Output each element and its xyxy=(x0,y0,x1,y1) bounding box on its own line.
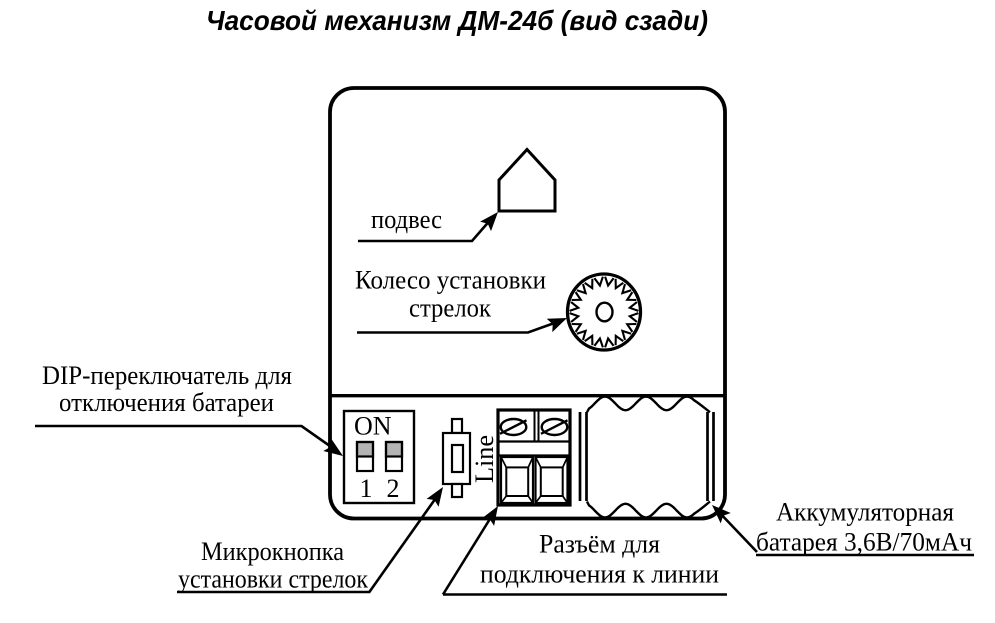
svg-text:отключения батареи: отключения батареи xyxy=(59,388,274,417)
svg-text:ON: ON xyxy=(354,412,392,441)
svg-text:Разъём для: Разъём для xyxy=(539,530,660,559)
svg-text:подвес: подвес xyxy=(371,205,442,234)
svg-text:Часовой механизм ДМ-24б (вид с: Часовой механизм ДМ-24б (вид сзади) xyxy=(206,5,708,36)
svg-text:стрелок: стрелок xyxy=(409,294,491,323)
svg-text:батарея 3,6В/70мАч: батарея 3,6В/70мАч xyxy=(756,528,972,557)
svg-text:подключения к линии: подключения к линии xyxy=(480,560,719,589)
svg-text:Микрокнопка: Микрокнопка xyxy=(201,537,344,566)
svg-text:установки стрелок: установки стрелок xyxy=(178,565,368,594)
svg-text:Колесо установки: Колесо установки xyxy=(355,266,546,295)
svg-text:Line: Line xyxy=(470,435,499,483)
svg-text:2: 2 xyxy=(387,474,400,503)
svg-text:Аккумуляторная: Аккумуляторная xyxy=(776,498,954,527)
svg-text:1: 1 xyxy=(360,474,373,503)
svg-text:DIP-переключатель для: DIP-переключатель для xyxy=(42,361,292,390)
